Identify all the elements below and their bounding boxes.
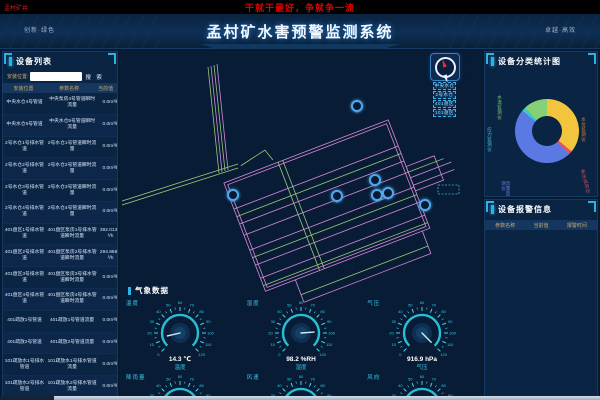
param-name-cell: 2号水仓1号管道瞬时流量: [46, 141, 98, 153]
device-alarms-panel: 设备报警信息 参数名称当前值报警时间: [484, 199, 598, 399]
svg-text:40: 40: [156, 309, 161, 314]
svg-text:60: 60: [299, 301, 304, 305]
svg-text:70: 70: [310, 376, 315, 381]
svg-text:90: 90: [206, 319, 211, 324]
page-title: 孟村矿水害预警监测系统: [206, 21, 393, 42]
horizontal-scrollbar: [0, 396, 600, 400]
map-pin[interactable]: [227, 189, 239, 201]
gauge-降雨量: 降雨量0102030405060708090100110120: [120, 371, 241, 399]
install-location-cell: 401疏放1号管道: [3, 318, 46, 324]
slogan-text: 干就干最好，争就争一流: [0, 1, 600, 14]
svg-text:110: 110: [447, 342, 454, 347]
table-row[interactable]: 101疏放水2号排水管道101疏放水2号排水管道流量0.0m³/h: [3, 376, 117, 398]
map-pin[interactable]: [369, 174, 381, 186]
svg-text:0: 0: [278, 352, 281, 357]
svg-text:50: 50: [166, 376, 171, 381]
column-header: 参数名称: [485, 222, 525, 229]
param-name-cell: 101疏放水1号排水管道流量: [46, 359, 98, 371]
svg-text:14.3 ℃: 14.3 ℃: [169, 355, 191, 363]
map-pin[interactable]: [351, 100, 363, 112]
table-row[interactable]: 2号水仓4号排水管道2号水仓4号管道瞬时流量0.0m³/h: [3, 202, 117, 224]
svg-text:100: 100: [449, 331, 456, 336]
column-header: 报警时间: [557, 222, 597, 229]
svg-text:40: 40: [398, 383, 403, 388]
svg-text:30: 30: [391, 319, 396, 324]
table-row[interactable]: 401疏放2号管道401疏放2号管道流量0.0m³/h: [3, 333, 117, 355]
svg-text:20: 20: [148, 331, 153, 336]
install-location-cell: 2号水仓3号排水管道: [3, 185, 46, 197]
svg-text:30: 30: [150, 319, 155, 324]
svg-text:120: 120: [440, 352, 447, 357]
column-header: 安装位置: [3, 85, 44, 92]
column-header: 参数名称: [44, 85, 94, 92]
svg-text:120: 120: [199, 352, 206, 357]
table-row[interactable]: 中央水仓5号管道中央水仓5号管道瞬时流量0.0m³/h: [3, 115, 117, 137]
title-decoration: [200, 44, 400, 49]
svg-text:100: 100: [328, 331, 335, 336]
svg-text:80: 80: [200, 309, 205, 314]
weather-section: 气象数据 温度010203040506070809010011012014.3 …: [120, 281, 482, 399]
install-location-cell: 中央水仓4号管道: [3, 100, 46, 106]
device-table-body: 中央水仓4号管道中央泵房4号管道瞬时流量0.0m³/h中央水仓5号管道中央水仓5…: [3, 93, 117, 398]
alarm-table-body: [485, 230, 597, 398]
param-name-cell: 401疏放2号管道流量: [46, 340, 98, 346]
install-location-cell: 中央水仓5号管道: [3, 122, 46, 128]
param-name-cell: 401盘区泵房3号排水管道瞬时流量: [46, 272, 98, 284]
svg-text:30: 30: [271, 319, 276, 324]
param-name-cell: 2号水仓2号管道瞬时流量: [46, 163, 98, 175]
svg-text:50: 50: [287, 302, 292, 307]
svg-text:50: 50: [166, 302, 171, 307]
svg-text:110: 110: [326, 342, 333, 347]
search-input[interactable]: [30, 72, 82, 81]
svg-text:40: 40: [398, 309, 403, 314]
install-location-cell: 401疏放2号管道: [3, 340, 46, 346]
install-location-cell: 2号水仓1号排水管道: [3, 141, 46, 153]
current-value-cell: 0.0m³/h: [98, 296, 117, 302]
svg-text:60: 60: [419, 375, 424, 379]
donut-slice-label: 水位监测仪: [581, 117, 586, 142]
device-table-header: 安装位置参数名称当前值: [3, 83, 117, 93]
table-row[interactable]: 2号水仓1号排水管道2号水仓1号管道瞬时流量0.0m³/h: [3, 137, 117, 159]
current-value-cell: 0.0m³/h: [98, 122, 117, 128]
param-name-cell: 101疏放水2号排水管道流量: [46, 381, 98, 393]
param-name-cell: 中央水仓5号管道瞬时流量: [46, 119, 98, 131]
device-list-title: 设备列表: [16, 56, 52, 67]
param-name-cell: 401疏放1号管道流量: [46, 318, 98, 324]
svg-text:60: 60: [178, 375, 183, 379]
device-search-row: 安装位置: 搜 索: [3, 69, 117, 83]
param-name-cell: 2号水仓3号管道瞬时流量: [46, 185, 98, 197]
donut-chart-area: 水位监测仪渗压监测仪流量监测仪应力监测仪水温监测仪: [485, 69, 597, 197]
svg-text:10: 10: [271, 342, 276, 347]
gauge-湿度: 湿度010203040506070809010011012098.2 %RH湿度: [241, 297, 362, 371]
alarms-title-row: 设备报警信息: [485, 200, 597, 217]
param-name-cell: 401盘区泵房1号排水管道瞬时流量: [46, 228, 98, 240]
svg-text:98.2 %RH: 98.2 %RH: [286, 356, 316, 363]
install-location-cell: 401盘区2号排水管道: [3, 250, 46, 262]
gauge-温度: 温度010203040506070809010011012014.3 ℃温度: [120, 297, 241, 371]
svg-text:50: 50: [287, 376, 292, 381]
stats-title-row: 设备分类统计图: [485, 52, 597, 69]
svg-text:0: 0: [158, 352, 161, 357]
map-area: 中央水仓2号水仓401盘区101盘区 气象数据 温度01020304050607…: [120, 51, 482, 399]
column-header: 当前值: [525, 222, 556, 229]
svg-text:60: 60: [419, 301, 424, 305]
map-layer-button-3[interactable]: 401盘区: [433, 100, 456, 108]
install-location-cell: 2号水仓4号排水管道: [3, 206, 46, 218]
current-value-cell: 0.0m³/h: [98, 275, 117, 281]
svg-text:50: 50: [408, 376, 413, 381]
table-row[interactable]: 2号水仓2号排水管道2号水仓2号管道瞬时流量0.0m³/h: [3, 158, 117, 180]
current-value-cell: 0.0m³/h: [98, 340, 117, 346]
svg-text:90: 90: [448, 319, 453, 324]
left-motto: 创新·绿色: [24, 25, 55, 34]
mine-map-drawing: [120, 51, 482, 313]
table-row[interactable]: 2号水仓3号排水管道2号水仓3号管道瞬时流量0.0m³/h: [3, 180, 117, 202]
svg-text:120: 120: [319, 352, 326, 357]
map-layer-button-1[interactable]: 中央水仓: [433, 82, 456, 90]
gauge-风向: 风向0102030405060708090100110120: [361, 371, 482, 399]
alarms-title: 设备报警信息: [498, 204, 552, 215]
svg-text:70: 70: [431, 376, 436, 381]
current-value-cell: 0.0m³/h: [98, 362, 117, 368]
param-name-cell: 401盘区泵房4号排水管道瞬时流量: [46, 293, 98, 305]
svg-text:60: 60: [178, 301, 183, 305]
svg-text:60: 60: [299, 375, 304, 379]
svg-text:70: 70: [190, 302, 195, 307]
svg-text:70: 70: [190, 376, 195, 381]
svg-text:916.9 hPa: 916.9 hPa: [407, 356, 437, 363]
svg-text:110: 110: [205, 342, 212, 347]
install-location-cell: 101疏放水1号排水管道: [3, 359, 46, 371]
current-value-cell: 0.0m³/h: [98, 318, 117, 324]
title-accent-bar: [491, 57, 494, 66]
search-label: 安装位置:: [7, 73, 28, 80]
current-value-cell: 382.013m³/h: [98, 228, 117, 240]
donut-chart: [515, 99, 579, 163]
svg-text:50: 50: [408, 302, 413, 307]
gauge-气压: 气压0102030405060708090100110120916.9 hPa气…: [361, 297, 482, 371]
table-row[interactable]: 401盘区3号排水管道401盘区泵房3号排水管道瞬时流量0.0m³/h: [3, 267, 117, 289]
alarm-table-header: 参数名称当前值报警时间: [485, 220, 597, 230]
title-accent-bar: [491, 205, 494, 214]
svg-text:气压: 气压: [416, 363, 428, 371]
svg-text:温度: 温度: [175, 363, 187, 371]
svg-text:80: 80: [200, 383, 205, 388]
dashboard: 孟村矿井 干就干最好，争就争一流 创新·绿色 孟村矿水害预警监测系统 卓越·高效…: [0, 0, 600, 400]
donut-slice-label: 水温监测仪: [497, 95, 502, 120]
current-value-cell: 0.0m³/h: [98, 384, 117, 390]
gauge-grid: 温度010203040506070809010011012014.3 ℃温度湿度…: [120, 297, 482, 399]
current-value-cell: 0.0m³/h: [98, 100, 117, 106]
compass-needle-north: [441, 59, 447, 68]
table-row[interactable]: 中央水仓4号管道中央泵房4号管道瞬时流量0.0m³/h: [3, 93, 117, 115]
device-list-panel: 设备列表 安装位置: 搜 索 安装位置参数名称当前值 中央水仓4号管道中央泵房4…: [2, 51, 118, 399]
device-list-title-row: 设备列表: [3, 52, 117, 69]
right-motto: 卓越·高效: [545, 25, 576, 34]
svg-text:湿度: 湿度: [295, 363, 307, 371]
install-location-cell: 101疏放水2号排水管道: [3, 381, 46, 393]
install-location-cell: 401盘区1号排水管道: [3, 228, 46, 240]
map-pin[interactable]: [331, 190, 343, 202]
svg-text:70: 70: [431, 302, 436, 307]
svg-text:40: 40: [277, 309, 282, 314]
svg-text:10: 10: [391, 342, 396, 347]
svg-text:90: 90: [327, 319, 332, 324]
header: 创新·绿色 孟村矿水害预警监测系统 卓越·高效: [0, 14, 600, 49]
current-value-cell: 294.868m³/h: [98, 250, 117, 262]
svg-text:0: 0: [399, 352, 402, 357]
search-button[interactable]: 搜 索: [85, 73, 104, 81]
current-value-cell: 0.0m³/h: [98, 209, 117, 215]
table-row[interactable]: 401盘区1号排水管道401盘区泵房1号排水管道瞬时流量382.013m³/h: [3, 224, 117, 246]
stats-title: 设备分类统计图: [498, 56, 561, 67]
map-pin[interactable]: [419, 199, 431, 211]
compass-button[interactable]: [430, 53, 460, 81]
current-value-cell: 0.0m³/h: [98, 188, 117, 194]
svg-text:20: 20: [389, 331, 394, 336]
svg-text:100: 100: [207, 331, 214, 336]
svg-text:80: 80: [320, 309, 325, 314]
param-name-cell: 401盘区泵房2号排水管道瞬时流量: [46, 250, 98, 262]
top-black-bar: 孟村矿井 干就干最好，争就争一流: [0, 0, 600, 14]
svg-text:80: 80: [441, 383, 446, 388]
map-layer-buttons: 中央水仓2号水仓401盘区101盘区: [433, 82, 456, 117]
svg-text:40: 40: [156, 383, 161, 388]
svg-text:70: 70: [310, 302, 315, 307]
gauge-风速: 风速0102030405060708090100110120: [241, 371, 362, 399]
svg-text:40: 40: [277, 383, 282, 388]
weather-title-row: 气象数据: [128, 285, 482, 296]
device-stats-panel: 设备分类统计图 水位监测仪渗压监测仪流量监测仪应力监测仪水温监测仪: [484, 51, 598, 197]
donut-slice-label: 渗压监测仪: [580, 169, 591, 194]
title-accent-bar: [9, 57, 12, 66]
param-name-cell: 中央泵房4号管道瞬时流量: [46, 97, 98, 109]
install-location-cell: 2号水仓2号排水管道: [3, 163, 46, 175]
compass-icon: [435, 57, 456, 78]
svg-text:20: 20: [268, 331, 273, 336]
svg-text:80: 80: [320, 383, 325, 388]
param-name-cell: 2号水仓4号管道瞬时流量: [46, 206, 98, 218]
table-row[interactable]: 401盘区2号排水管道401盘区泵房2号排水管道瞬时流量294.868m³/h: [3, 245, 117, 267]
column-header: 当前值: [94, 85, 117, 92]
table-row[interactable]: 101疏放水1号排水管道101疏放水1号排水管道流量0.0m³/h: [3, 354, 117, 376]
donut-slice-label: 应力监测仪: [487, 127, 492, 152]
current-value-cell: 0.0m³/h: [98, 166, 117, 172]
scrollbar-thumb[interactable]: [54, 396, 600, 400]
map-pin[interactable]: [382, 187, 394, 199]
table-row[interactable]: 401疏放1号管道401疏放1号管道流量0.0m³/h: [3, 311, 117, 333]
title-accent-bar: [128, 287, 131, 295]
weather-title: 气象数据: [135, 285, 169, 296]
svg-text:10: 10: [150, 342, 155, 347]
install-location-cell: 401盘区4号排水管道: [3, 293, 46, 305]
donut-slice-label: 流量监测仪: [501, 181, 510, 197]
map-layer-button-2[interactable]: 2号水仓: [433, 91, 456, 99]
install-location-cell: 401盘区3号排水管道: [3, 272, 46, 284]
current-value-cell: 0.0m³/h: [98, 144, 117, 150]
svg-text:80: 80: [441, 309, 446, 314]
table-row[interactable]: 401盘区4号排水管道401盘区泵房4号排水管道瞬时流量0.0m³/h: [3, 289, 117, 311]
map-layer-button-4[interactable]: 101盘区: [433, 109, 456, 117]
